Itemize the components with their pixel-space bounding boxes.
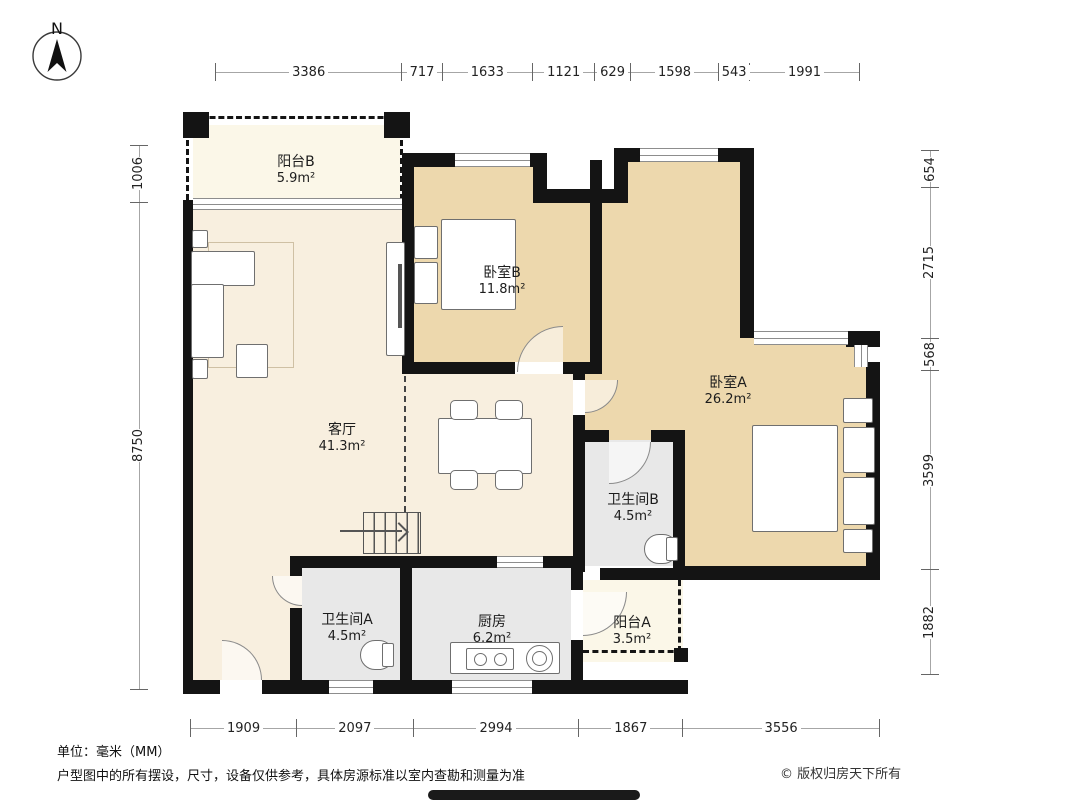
bedroom-b-window [455, 153, 530, 167]
balcony-a-dash-bottom [583, 650, 683, 659]
bedroom-a-nightstand [843, 398, 873, 423]
tv-screen [398, 264, 402, 328]
dim-row-top: 3386 717 1633 1121 629 1598 543 1991 [215, 63, 860, 81]
balcony-b-dash-top [183, 116, 410, 125]
wall-bathroom-b-top-right [651, 430, 673, 442]
dining-chair-4 [495, 470, 523, 490]
north-compass-icon: N [24, 10, 90, 84]
balcony-b-living-window [193, 198, 402, 210]
balcony-b-corner-tr [384, 112, 410, 138]
dim-right-2: 2715 [921, 187, 939, 338]
north-arrow-icon [48, 39, 67, 72]
dim-right-3: 568 [921, 338, 939, 370]
dim-top-7: 543 [718, 63, 749, 81]
room-label-bathroom-b: 卫生间B4.5m² [607, 492, 659, 524]
dim-right-4: 3599 [921, 370, 939, 569]
living-dining-divider-dashed [404, 376, 410, 512]
compass-n-label: N [51, 19, 63, 38]
floorplan-page: N 3386 717 1633 1121 629 1598 543 1991 1… [0, 0, 1066, 800]
bedroom-a-nightstand-2 [843, 529, 873, 553]
wall-bathroom-a-left-lower [290, 608, 302, 680]
bedroom-b-nightstand-2 [414, 262, 438, 304]
wall-bedroom-a-bottom [684, 566, 880, 580]
kitchen-sink-basin [532, 651, 547, 666]
room-label-balcony-b: 阳台B5.9m² [277, 154, 316, 186]
dim-top-2: 717 [401, 63, 441, 81]
wall-bathroom-a-kitchen-divider [400, 556, 412, 680]
wall-bedroom-a-right-upper [740, 148, 754, 338]
bathroom-a-window [329, 680, 373, 694]
side-table-top [192, 230, 208, 248]
room-label-balcony-a: 阳台A3.5m² [613, 615, 652, 647]
tv-stand [386, 242, 405, 356]
dim-col-left: 1006 8750 [130, 145, 148, 690]
dim-top-3: 1633 [442, 63, 532, 81]
wall-kitchen-right-upper [571, 556, 583, 590]
bedroom-a-bay-window-top [754, 331, 848, 345]
bedroom-a-window [640, 148, 718, 162]
bedroom-a-bay-window-side [854, 345, 868, 367]
dim-top-6: 1598 [630, 63, 718, 81]
wall-kitchen-right-lower [571, 640, 583, 680]
bedroom-a-bed [752, 425, 838, 532]
dim-right-5: 1882 [921, 569, 939, 675]
dim-bottom-4: 1867 [578, 719, 682, 737]
dim-top-8: 1991 [749, 63, 860, 81]
dim-top-5: 629 [594, 63, 629, 81]
side-table-bottom [192, 359, 208, 379]
sofa-side-section [191, 284, 224, 358]
stove-burner-2 [494, 653, 507, 666]
unit-note: 单位：毫米（MM） [57, 741, 170, 760]
dim-bottom-3: 2994 [413, 719, 579, 737]
kitchen-window [452, 680, 532, 694]
wall-balcony-a-top [600, 568, 684, 580]
dim-bottom-2: 2097 [296, 719, 412, 737]
bedroom-a-wardrobe-1 [843, 427, 875, 473]
dining-chair-1 [450, 400, 478, 420]
copyright: © 版权归房天下所有 [780, 763, 901, 782]
balcony-a-dash-right [678, 580, 687, 652]
dim-left-2: 8750 [130, 202, 148, 690]
disclaimer: 户型图中的所有摆设，尺寸，设备仅供参考，具体房源标准以室内查勘和测量为准 [57, 765, 525, 784]
wall-bedroom-divider [590, 160, 602, 374]
bedroom-b-nightstand-1 [414, 226, 438, 259]
dim-bottom-1: 1909 [190, 719, 296, 737]
dim-right-1: 654 [921, 150, 939, 187]
wall-bathroom-b-left [573, 415, 585, 572]
room-label-bedroom-b: 卧室B11.8m² [479, 265, 526, 297]
dim-top-1: 3386 [215, 63, 401, 81]
room-label-bathroom-a: 卫生间A4.5m² [321, 612, 373, 644]
home-indicator-bar [428, 790, 640, 800]
armchair [236, 344, 268, 378]
sofa-top-section [191, 251, 255, 286]
dim-col-right: 654 2715 568 3599 1882 [921, 150, 939, 675]
kitchen-pass-window [497, 556, 543, 568]
wall-bedroom-b-bottom [402, 362, 602, 374]
entry-door-gap [220, 680, 262, 694]
balcony-b-corner-tl [183, 112, 209, 138]
balcony-a-corner [674, 648, 688, 662]
bathroom-a-toilet-tank [382, 643, 394, 667]
wall-bathroom-a-left-upper [290, 556, 302, 576]
dim-row-bottom: 1909 2097 2994 1867 3556 [190, 719, 880, 737]
bedroom-a-wardrobe-2 [843, 477, 875, 525]
dining-table [438, 418, 532, 474]
dim-top-4: 1121 [532, 63, 594, 81]
room-label-living-room: 客厅41.3m² [319, 422, 366, 454]
dim-bottom-5: 3556 [682, 719, 880, 737]
room-label-kitchen: 厨房6.2m² [473, 614, 512, 646]
dining-chair-2 [495, 400, 523, 420]
room-label-bedroom-a: 卧室A26.2m² [705, 375, 752, 407]
bathroom-b-toilet-tank [666, 537, 678, 561]
stove-burner-1 [474, 653, 487, 666]
wall-bathroom-b-top-left [585, 430, 609, 442]
balcony-b-dash-left [186, 140, 195, 200]
wall-hall-vert-upper [573, 362, 585, 380]
dim-left-1: 1006 [130, 145, 148, 202]
dining-chair-3 [450, 470, 478, 490]
